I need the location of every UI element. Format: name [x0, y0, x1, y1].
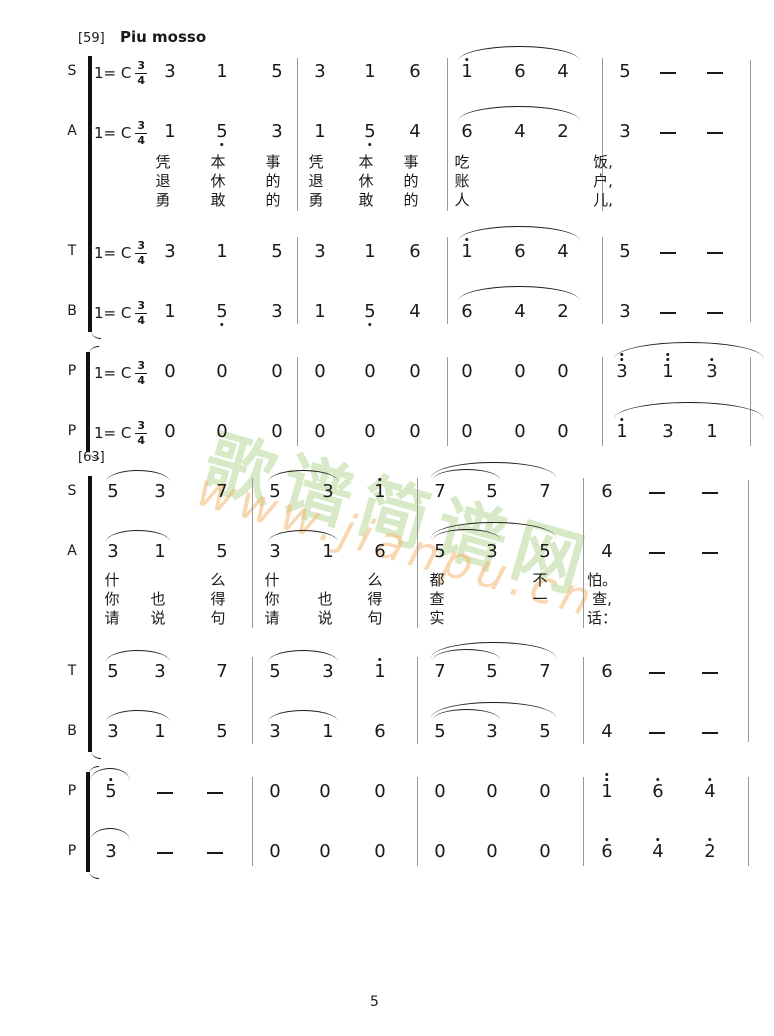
staff-label: P: [62, 363, 82, 379]
note: 1: [164, 123, 175, 141]
note: 2: [557, 303, 568, 321]
lyric-syllable: 也: [150, 591, 165, 607]
rest: 0: [514, 363, 525, 381]
note: 1: [706, 423, 717, 441]
note: 4: [601, 543, 612, 561]
note: 3: [662, 423, 673, 441]
note: 3: [164, 243, 175, 261]
note-dash: [702, 552, 718, 554]
barline: [417, 657, 418, 744]
bracket-hook: [89, 346, 99, 355]
note: 3: [154, 483, 165, 501]
note: 7: [216, 663, 227, 681]
note: 5: [486, 483, 497, 501]
lyric-syllable: 本: [210, 154, 225, 170]
note: 7: [216, 483, 227, 501]
rest: 0: [216, 363, 227, 381]
note-dash: [649, 672, 665, 674]
note: 3: [314, 63, 325, 81]
staff-label: A: [62, 123, 82, 139]
note: 7: [434, 663, 445, 681]
note-dash: [660, 252, 676, 254]
barline: [748, 480, 749, 742]
note: 3: [271, 123, 282, 141]
lyric-syllable: 么: [367, 572, 382, 588]
lyric-syllable: 吃: [454, 154, 469, 170]
page-number: 5: [370, 994, 379, 1010]
lyric-syllable: 凭: [308, 154, 323, 170]
slur: [268, 710, 338, 722]
lyric-syllable: 的: [403, 173, 418, 189]
lyric-syllable: 事: [265, 154, 280, 170]
lyric-syllable: 敢: [210, 192, 225, 208]
key-signature: 1= C34: [94, 297, 147, 329]
note: 5: [364, 123, 375, 141]
staff-label: P: [62, 843, 82, 859]
barline: [583, 777, 584, 866]
lyric-syllable: 的: [265, 173, 280, 189]
barline: [748, 777, 749, 866]
lyric-syllable: 勇: [308, 192, 323, 208]
note: 6: [652, 783, 663, 801]
note: 1: [322, 723, 333, 741]
note: 1: [314, 123, 325, 141]
note: 1: [461, 243, 472, 261]
lyric-syllable: 也: [317, 591, 332, 607]
lyric-syllable: 说: [150, 610, 165, 626]
note-dash: [702, 732, 718, 734]
note: 1: [374, 663, 385, 681]
note: 3: [314, 243, 325, 261]
note: 5: [486, 663, 497, 681]
note: 6: [461, 303, 472, 321]
lyric-syllable: 凭: [155, 154, 170, 170]
rehearsal-mark-59: [59]: [78, 31, 105, 46]
slur: [458, 46, 580, 61]
rest: 0: [434, 783, 445, 801]
staff-label: S: [62, 483, 82, 499]
rest: 0: [461, 423, 472, 441]
note: 7: [434, 483, 445, 501]
note: 3: [154, 663, 165, 681]
note: 3: [271, 303, 282, 321]
rest: 0: [164, 363, 175, 381]
key-signature: 1= C34: [94, 57, 147, 89]
slur: [431, 642, 556, 658]
note-dash: [702, 672, 718, 674]
note: 5: [107, 663, 118, 681]
note-dash: [649, 552, 665, 554]
slur: [106, 710, 170, 722]
note: 5: [216, 123, 227, 141]
rest: 0: [557, 363, 568, 381]
note: 4: [652, 843, 663, 861]
lyric-syllable: 一: [532, 591, 547, 607]
slur: [431, 462, 556, 478]
note: 6: [374, 543, 385, 561]
note-dash: [157, 792, 173, 794]
sheet-music-page: 歌谱简谱网 www.jianpu.cn [59] Piu mosso [63] …: [0, 0, 774, 1036]
note: 1: [601, 783, 612, 801]
rest: 0: [409, 363, 420, 381]
staff-label: B: [62, 303, 82, 319]
rest: 0: [486, 843, 497, 861]
rest: 0: [461, 363, 472, 381]
note: 5: [364, 303, 375, 321]
lyric-syllable: 休: [358, 173, 373, 189]
system-bracket: [86, 772, 90, 872]
lyric-syllable: 勇: [155, 192, 170, 208]
note: 4: [557, 243, 568, 261]
rest: 0: [216, 423, 227, 441]
lyric-syllable: 得: [367, 591, 382, 607]
system-bracket: [88, 56, 92, 332]
rest: 0: [486, 783, 497, 801]
rest: 0: [314, 363, 325, 381]
staff-label: P: [62, 783, 82, 799]
barline: [750, 357, 751, 446]
note: 4: [704, 783, 715, 801]
bracket-hook: [89, 870, 99, 879]
rest: 0: [374, 843, 385, 861]
rest: 0: [164, 423, 175, 441]
note: 1: [154, 723, 165, 741]
note: 1: [364, 243, 375, 261]
note: 3: [322, 483, 333, 501]
note: 5: [216, 303, 227, 321]
barline: [602, 237, 603, 324]
rest: 0: [269, 783, 280, 801]
rest: 0: [539, 783, 550, 801]
note: 3: [269, 543, 280, 561]
note: 6: [514, 63, 525, 81]
barline: [750, 60, 751, 322]
rest: 0: [314, 423, 325, 441]
note-dash: [707, 312, 723, 314]
lyric-syllable: 儿,: [593, 192, 613, 208]
note-dash: [207, 852, 223, 854]
key-signature: 1= C34: [94, 117, 147, 149]
rest: 0: [271, 423, 282, 441]
note-dash: [207, 792, 223, 794]
lyric-syllable: 退: [308, 173, 323, 189]
lyric-syllable: 退: [155, 173, 170, 189]
note: 3: [164, 63, 175, 81]
note: 1: [216, 243, 227, 261]
note-dash: [157, 852, 173, 854]
note: 6: [514, 243, 525, 261]
slur: [106, 530, 170, 542]
barline: [252, 478, 253, 628]
note: 5: [539, 723, 550, 741]
staff-label: P: [62, 423, 82, 439]
note-dash: [707, 132, 723, 134]
tempo-marking: Piu mosso: [120, 28, 206, 46]
note: 4: [409, 303, 420, 321]
slur: [90, 828, 130, 841]
lyric-syllable: 休: [210, 173, 225, 189]
note: 3: [486, 723, 497, 741]
barline: [447, 357, 448, 446]
note-dash: [660, 72, 676, 74]
note: 4: [409, 123, 420, 141]
note: 5: [269, 663, 280, 681]
lyric-syllable: 不: [532, 572, 547, 588]
note-dash: [707, 252, 723, 254]
note-dash: [649, 492, 665, 494]
note: 5: [105, 783, 116, 801]
lyric-syllable: 请: [264, 610, 279, 626]
note: 1: [164, 303, 175, 321]
note-dash: [707, 72, 723, 74]
slur: [458, 286, 580, 301]
lyric-syllable: 实: [429, 610, 444, 626]
note: 6: [374, 723, 385, 741]
key-signature: 1= C34: [94, 237, 147, 269]
note: 3: [107, 723, 118, 741]
note: 1: [322, 543, 333, 561]
slur: [268, 470, 338, 482]
rest: 0: [539, 843, 550, 861]
note: 3: [105, 843, 116, 861]
lyric-syllable: 户,: [593, 173, 613, 189]
slur: [458, 226, 580, 241]
rest: 0: [364, 363, 375, 381]
staff-label: B: [62, 723, 82, 739]
barline: [583, 478, 584, 628]
slur: [106, 650, 170, 662]
barline: [583, 657, 584, 744]
staff-label: A: [62, 543, 82, 559]
note: 1: [154, 543, 165, 561]
rest: 0: [434, 843, 445, 861]
note: 3: [269, 723, 280, 741]
rest: 0: [319, 843, 330, 861]
lyric-syllable: 查,: [592, 591, 612, 607]
lyric-syllable: 饭,: [593, 154, 613, 170]
lyric-syllable: 说: [317, 610, 332, 626]
lyric-syllable: 你: [264, 591, 279, 607]
barline: [252, 777, 253, 866]
note: 5: [539, 543, 550, 561]
staff-label: T: [62, 243, 82, 259]
note: 3: [107, 543, 118, 561]
lyric-syllable: 敢: [358, 192, 373, 208]
note: 6: [409, 63, 420, 81]
lyric-syllable: 人: [454, 192, 469, 208]
slur: [614, 402, 764, 419]
barline: [417, 478, 418, 628]
barline: [602, 357, 603, 446]
rest: 0: [319, 783, 330, 801]
lyric-syllable: 账: [454, 173, 469, 189]
note: 7: [539, 483, 550, 501]
slur: [431, 702, 556, 718]
lyric-syllable: 本: [358, 154, 373, 170]
note: 1: [616, 423, 627, 441]
note: 5: [216, 723, 227, 741]
note: 5: [107, 483, 118, 501]
barline: [297, 357, 298, 446]
system-bracket: [86, 352, 90, 452]
lyric-syllable: 句: [367, 610, 382, 626]
rest: 0: [364, 423, 375, 441]
note-dash: [702, 492, 718, 494]
note: 1: [662, 363, 673, 381]
rest: 0: [269, 843, 280, 861]
note: 3: [619, 303, 630, 321]
note: 1: [314, 303, 325, 321]
lyric-syllable: 句: [210, 610, 225, 626]
slur: [106, 470, 170, 482]
lyric-syllable: 话：: [587, 610, 617, 626]
staff-label: T: [62, 663, 82, 679]
slur: [268, 650, 338, 662]
note: 3: [619, 123, 630, 141]
lyric-syllable: 得: [210, 591, 225, 607]
barline: [447, 58, 448, 211]
lyric-syllable: 你: [104, 591, 119, 607]
note: 3: [706, 363, 717, 381]
barline: [447, 237, 448, 324]
note: 2: [704, 843, 715, 861]
note: 4: [514, 303, 525, 321]
bracket-hook: [91, 750, 101, 759]
note-dash: [660, 132, 676, 134]
rest: 0: [514, 423, 525, 441]
note: 3: [486, 543, 497, 561]
lyric-syllable: 么: [210, 572, 225, 588]
note: 1: [374, 483, 385, 501]
note: 5: [269, 483, 280, 501]
note: 5: [619, 243, 630, 261]
slur: [431, 522, 556, 538]
rest: 0: [557, 423, 568, 441]
barline: [252, 657, 253, 744]
note-dash: [660, 312, 676, 314]
lyric-syllable: 的: [403, 192, 418, 208]
note-dash: [649, 732, 665, 734]
barline: [417, 777, 418, 866]
barline: [297, 58, 298, 211]
note: 6: [601, 843, 612, 861]
note: 3: [616, 363, 627, 381]
note: 5: [434, 723, 445, 741]
barline: [297, 237, 298, 324]
note: 6: [409, 243, 420, 261]
note: 3: [322, 663, 333, 681]
note: 5: [271, 243, 282, 261]
lyric-syllable: 什: [104, 572, 119, 588]
note: 1: [364, 63, 375, 81]
note: 7: [539, 663, 550, 681]
note: 1: [216, 63, 227, 81]
note: 5: [619, 63, 630, 81]
lyric-syllable: 的: [265, 192, 280, 208]
lyric-syllable: 事: [403, 154, 418, 170]
note: 1: [461, 63, 472, 81]
lyric-syllable: 都: [429, 572, 444, 588]
note: 5: [216, 543, 227, 561]
note: 6: [601, 483, 612, 501]
lyric-syllable: 查: [429, 591, 444, 607]
note: 4: [601, 723, 612, 741]
lyric-syllable: 什: [264, 572, 279, 588]
bracket-hook: [91, 330, 101, 339]
note: 5: [271, 63, 282, 81]
lyric-syllable: 怕。: [587, 572, 617, 588]
key-signature: 1= C34: [94, 357, 147, 389]
lyric-syllable: 请: [104, 610, 119, 626]
note: 4: [557, 63, 568, 81]
slur: [614, 342, 764, 359]
system-bracket: [88, 476, 92, 752]
staff-label: S: [62, 63, 82, 79]
note: 4: [514, 123, 525, 141]
note: 6: [461, 123, 472, 141]
slur: [268, 530, 338, 542]
key-signature: 1= C34: [94, 417, 147, 449]
note: 6: [601, 663, 612, 681]
rest: 0: [374, 783, 385, 801]
rest: 0: [409, 423, 420, 441]
note: 5: [434, 543, 445, 561]
rest: 0: [271, 363, 282, 381]
note: 2: [557, 123, 568, 141]
slur: [458, 106, 580, 121]
